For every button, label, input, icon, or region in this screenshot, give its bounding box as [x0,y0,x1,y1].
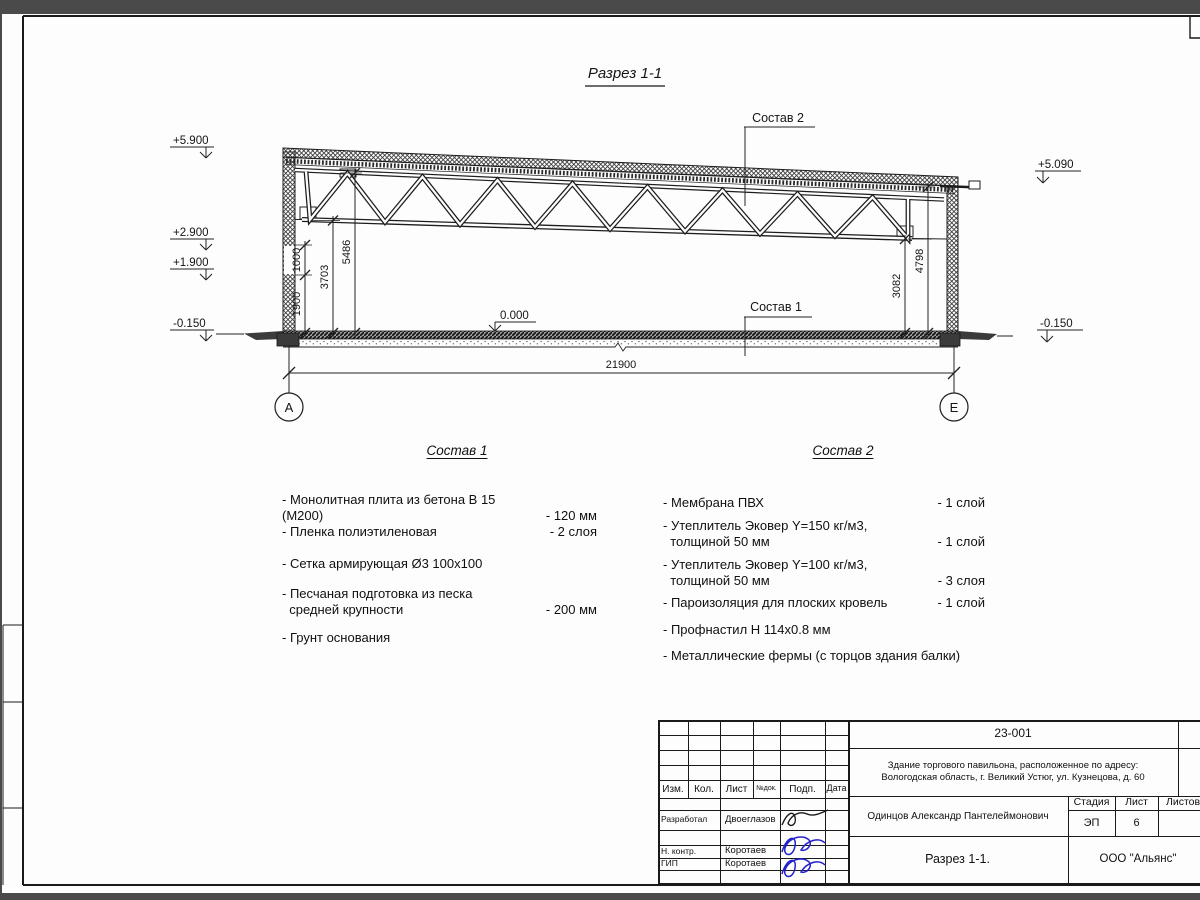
client-name: Одинцов Александр Пантелеймонович [848,796,1068,836]
col-podp: Подп. [780,780,825,798]
screenshot-root: { "drawing": { "title": "Разрез 1-1", "l… [0,0,1200,900]
view-title: Разрез 1-1 [585,65,665,86]
drawing-sheet: Разрез 1-1 [2,14,1200,893]
doc-number: 23-001 [848,720,1178,748]
axis-label-a: А [285,400,294,415]
col-kol: Кол. [688,780,720,798]
dim-3082: 3082 [891,274,903,298]
materials1-title: Состав 1 [377,443,537,458]
elevation-zero: 0.000 [489,310,536,331]
name-developer: Двоеглазов [722,810,779,830]
elevation-1900: +1.900 [170,257,214,280]
materials2-title: Состав 2 [763,443,923,458]
col-list: Лист [720,780,753,798]
dim-overall: 21900 [606,359,637,371]
company-name: ООО "Альянс" [1068,836,1200,883]
sheet-value: 6 [1115,810,1158,836]
view-name: Разрез 1-1. [848,836,1067,883]
col-izm: Изм. [658,780,688,798]
material-item: - Мембрана ПВХ- 1 слой [663,495,985,511]
material-item: - Металлические фермы (с торцов здания б… [663,648,985,664]
signature-black [778,804,830,832]
axis-label-e: Е [950,400,959,415]
material-item: - Профнастил Н 114х0.8 мм [663,622,985,638]
elevation-minus-0150-left: -0.150 [170,318,214,341]
dim-1900: 1900 [291,292,303,316]
material-item: - Утеплитель Эковер Y=150 кг/м3, толщино… [663,518,985,550]
material-item: - Сетка армирующая Ø3 100х100 [282,556,597,572]
floor-slab [216,331,1013,351]
svg-text:+5.900: +5.900 [173,135,209,147]
elevation-5900: +5.900 [170,135,214,158]
svg-text:+5.090: +5.090 [1038,159,1074,171]
dim-4798: 4798 [914,249,926,273]
col-ndoc: №док. [753,780,780,798]
material-item: - Утеплитель Эковер Y=100 кг/м3, толщино… [663,557,985,589]
sheets-label: Листов [1158,796,1200,810]
dim-1000: 1000 [291,248,303,272]
materials-list-2: Состав 2 - Мембрана ПВХ- 1 слой - Утепли… [663,440,985,680]
view-title-text: Разрез 1-1 [588,65,662,82]
col-data: Дата [825,780,848,798]
overall-dimension: 21900 [283,346,960,393]
title-block: Изм. Кол. Лист №док. Подп. Дата Разработ… [658,720,1200,885]
material-item: - Монолитная плита из бетона В 15 (М200)… [282,492,597,524]
svg-text:+1.900: +1.900 [173,257,209,269]
role-ncontrol: Н. контр. [658,845,720,858]
material-item: - Грунт основания [282,630,597,646]
dimensions-right: 3082 4798 [891,182,935,338]
material-item: - Песчаная подготовка из песка средней к… [282,586,597,618]
axis-markers: А Е [275,393,968,421]
role-gip: ГИП [658,858,720,870]
signature-blue [776,832,832,884]
label-sostav1: Состав 1 [750,300,802,314]
elevation-minus-0150-right: -0.150 [1037,318,1083,342]
right-wall [947,186,958,331]
elevation-2900: +2.900 [170,227,214,250]
svg-text:0.000: 0.000 [500,310,529,322]
materials-list-1: Состав 1 - Монолитная плита из бетона В … [282,440,597,655]
truss-diagonals [306,172,908,239]
dim-5486: 5486 [341,240,353,264]
label-sostav2: Состав 2 [752,111,804,125]
svg-text:-0.150: -0.150 [1040,318,1073,330]
name-ncontrol: Коротаев [722,845,779,858]
material-item: - Пароизоляция для плоских кровель- 1 сл… [663,595,985,611]
dimensions-left: 1000 1900 3703 5486 [291,168,362,338]
sheet-label: Лист [1115,796,1158,810]
stage-label: Стадия [1068,796,1115,810]
material-item: - Пленка полиэтиленовая- 2 слоя [282,524,597,540]
dim-3703: 3703 [319,265,331,289]
elevation-5090: +5.090 [1035,159,1081,183]
stage-value: ЭП [1068,810,1115,836]
name-gip: Коротаев [722,858,779,870]
object-description: Здание торгового павильона, расположенно… [848,748,1178,796]
svg-text:-0.150: -0.150 [173,318,206,330]
svg-text:+2.900: +2.900 [173,227,209,239]
role-developer: Разработал [658,810,720,830]
